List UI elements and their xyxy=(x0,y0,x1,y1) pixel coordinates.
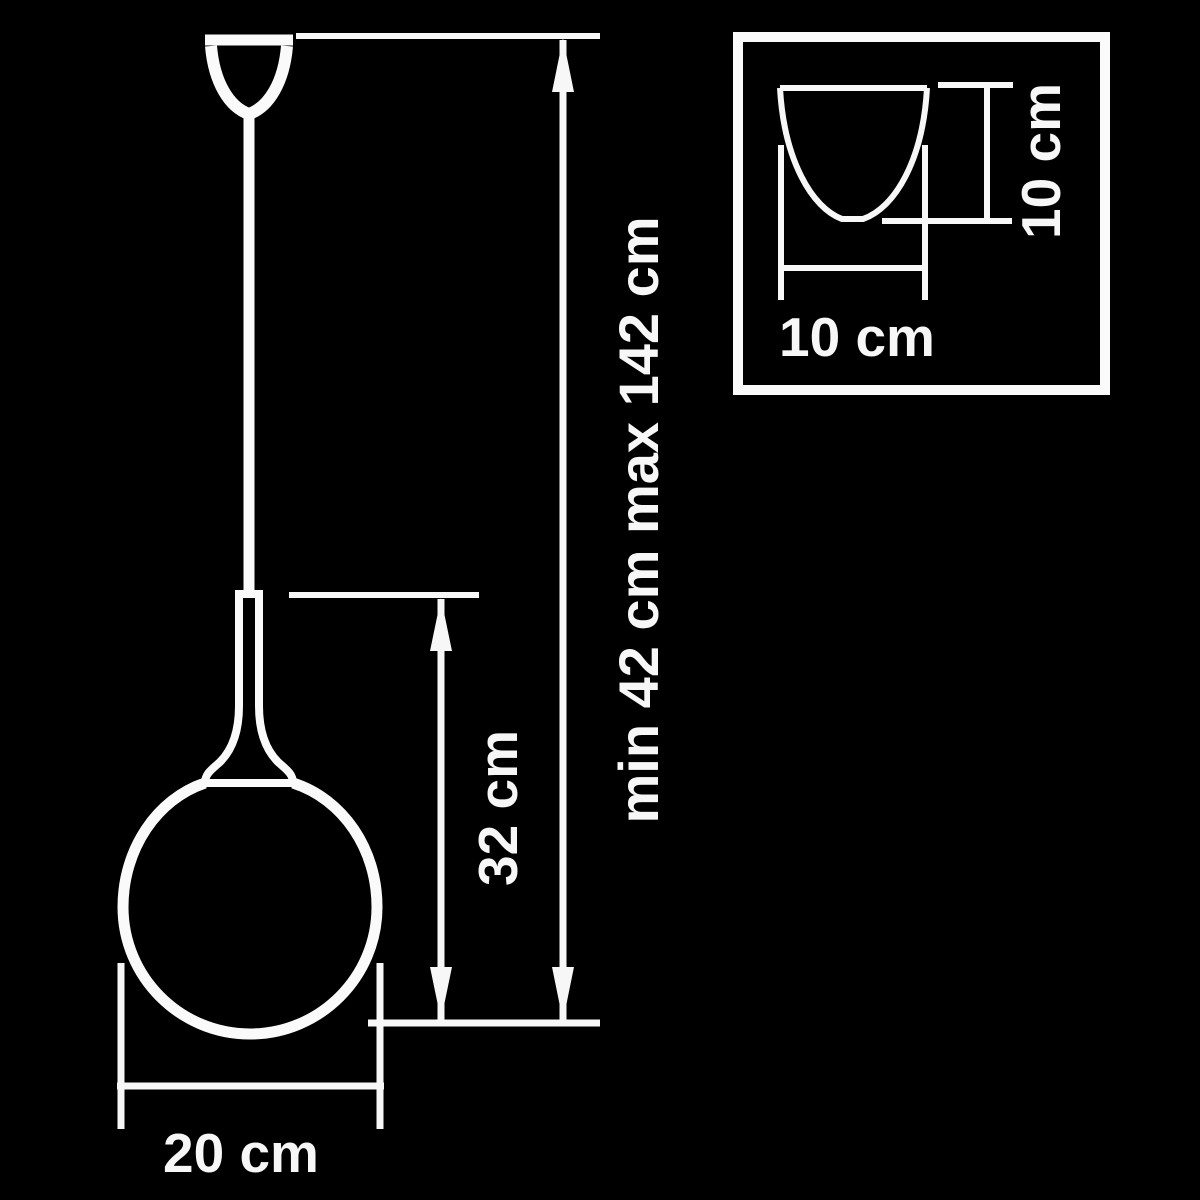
lamp-globe-outline xyxy=(123,783,377,1034)
label-inset-height: 10 cm xyxy=(1010,83,1072,239)
inset-detail: 10 cm 10 cm xyxy=(738,37,1105,390)
arrowhead-down-body xyxy=(430,967,452,1020)
label-body-height: 32 cm xyxy=(467,730,529,886)
lamp-neck-outline xyxy=(205,594,293,783)
label-globe-diameter: 20 cm xyxy=(163,1122,319,1184)
arrowhead-up-body xyxy=(430,598,452,651)
dimension-diagram: min 42 cm max 142 cm 32 cm 20 cm 10 cm 1… xyxy=(0,0,1200,1200)
arrowhead-up-overall xyxy=(552,38,574,92)
inset-shade-outline xyxy=(780,88,927,219)
label-inset-width: 10 cm xyxy=(779,306,935,368)
canopy-outline xyxy=(211,46,287,114)
label-overall-height: min 42 cm max 142 cm xyxy=(607,216,670,823)
pendant-lamp xyxy=(123,40,377,1034)
arrowhead-down-overall xyxy=(552,967,574,1021)
dim-body-height: 32 cm xyxy=(289,595,529,1020)
diagram-canvas: min 42 cm max 142 cm 32 cm 20 cm 10 cm 1… xyxy=(0,0,1200,1200)
